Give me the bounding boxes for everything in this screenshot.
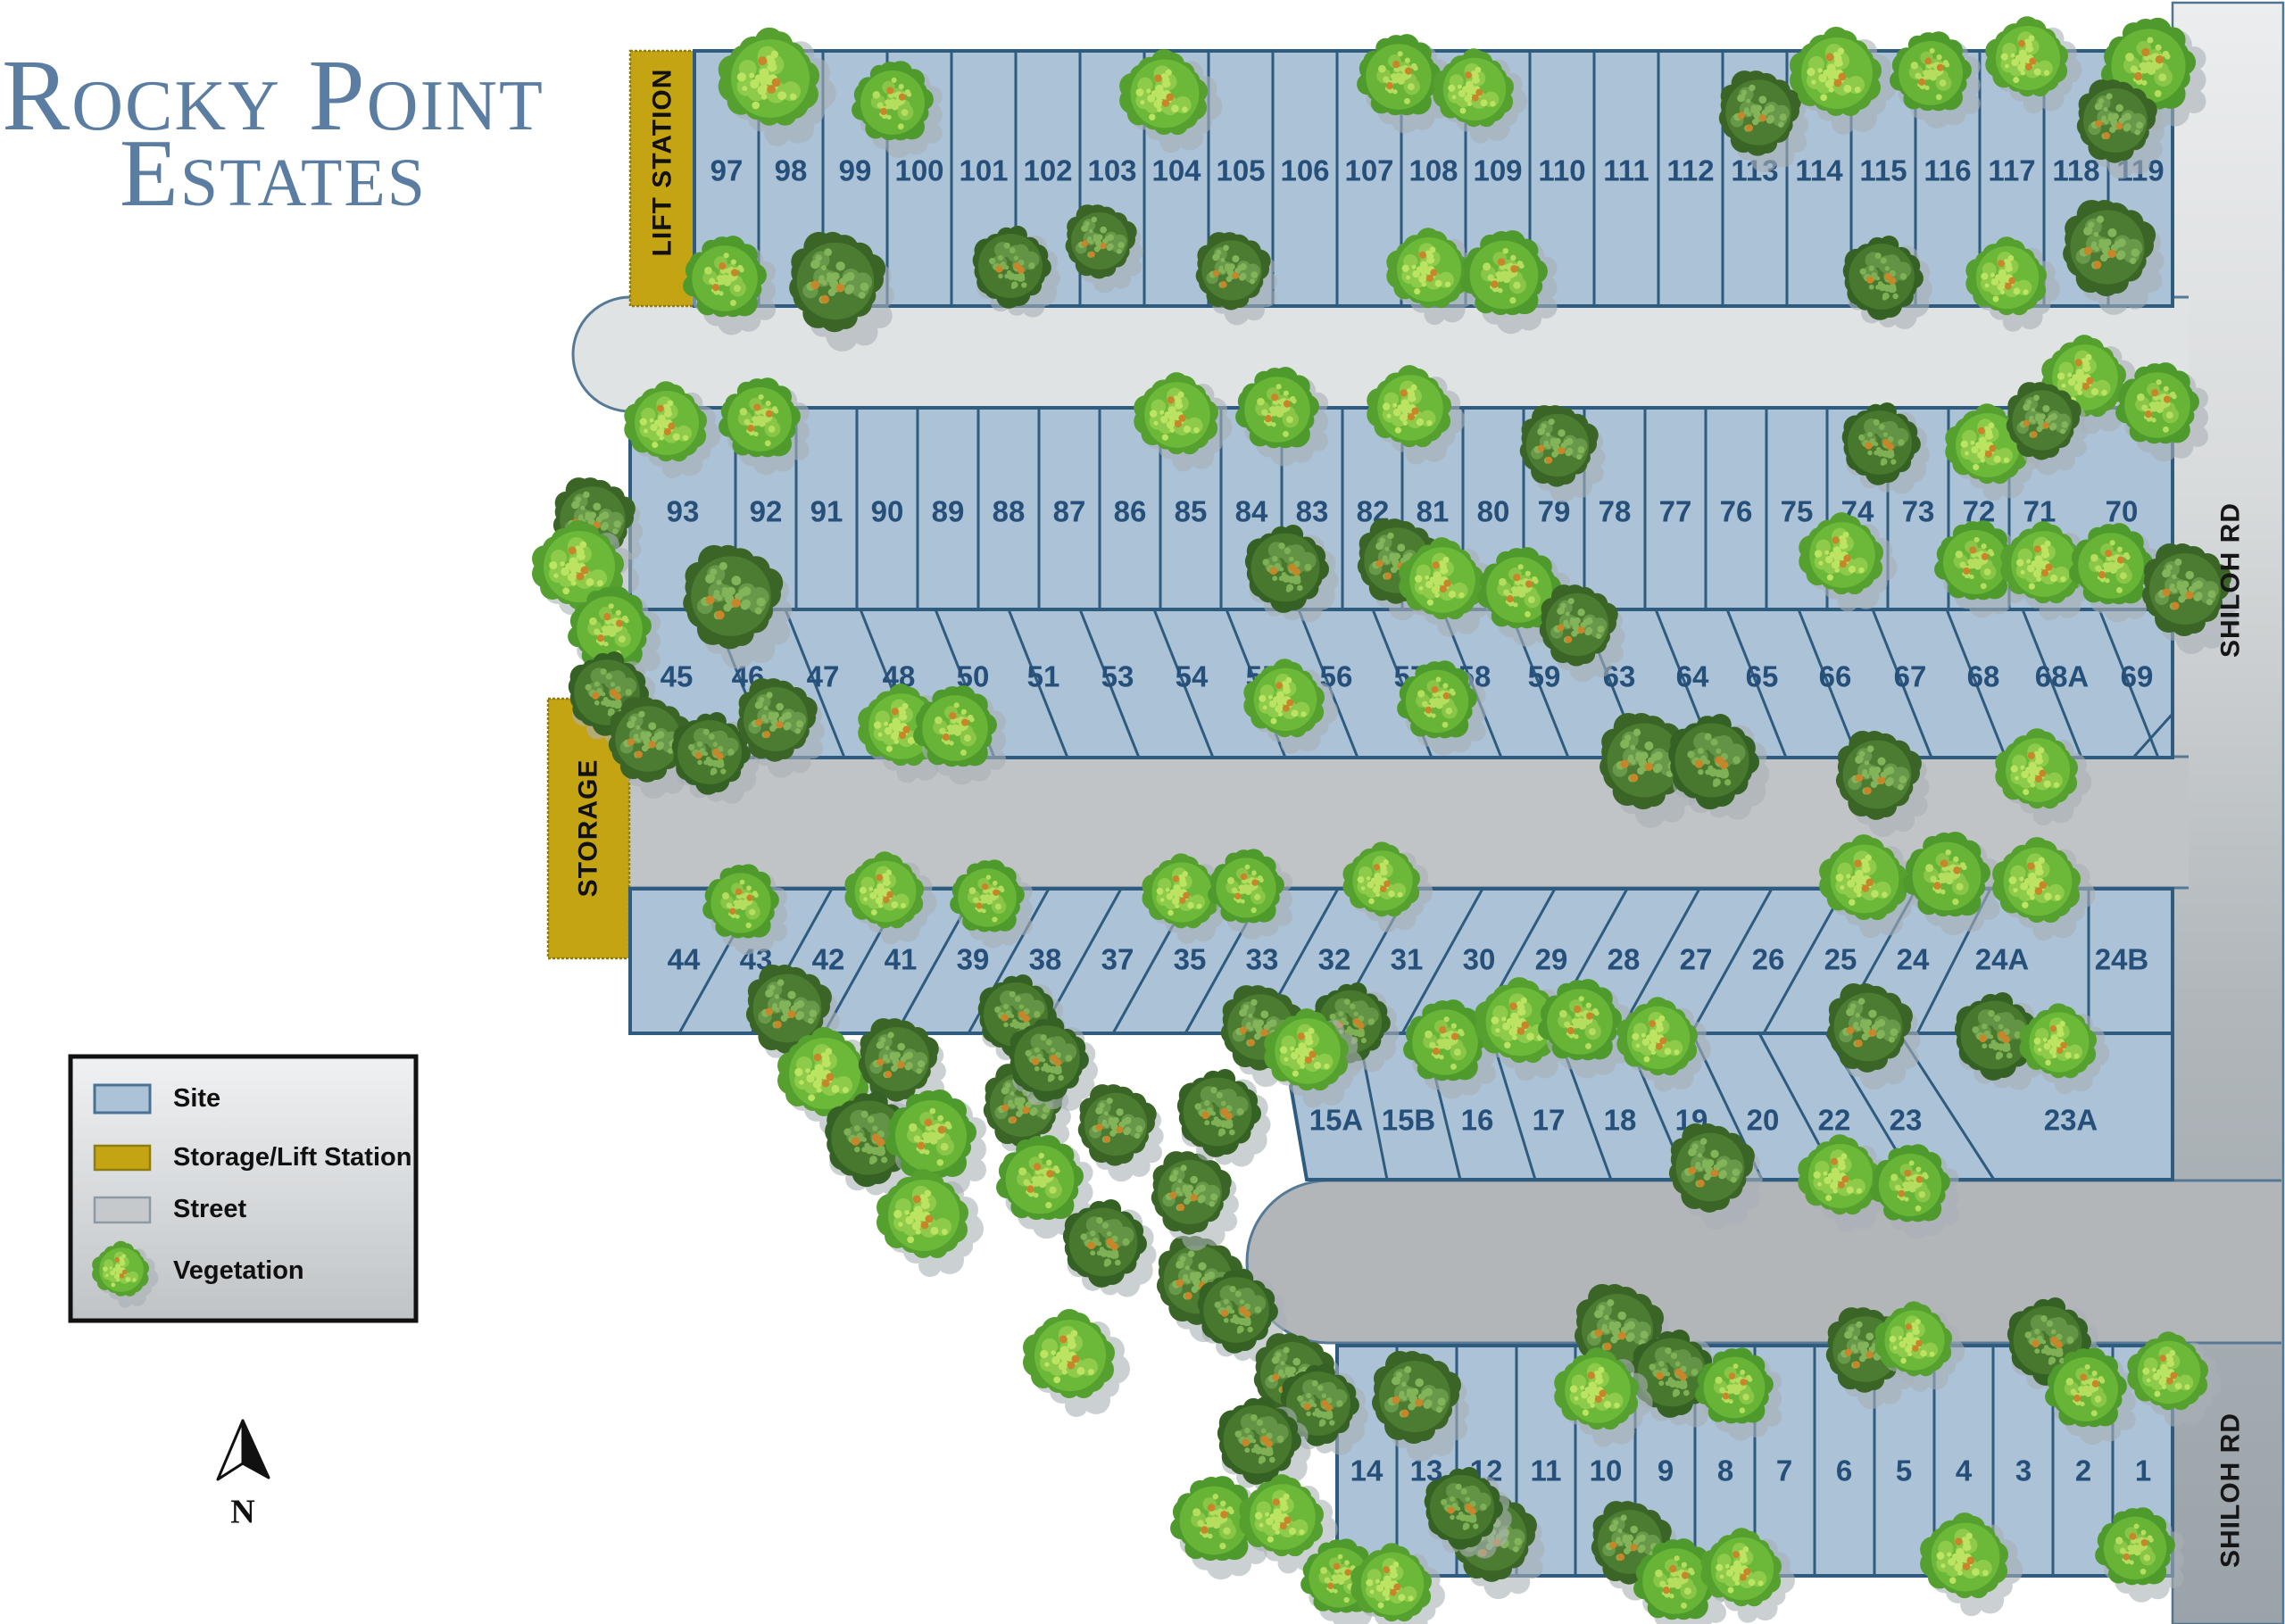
svg-text:83: 83 (1296, 495, 1329, 528)
svg-text:38: 38 (1029, 943, 1062, 976)
svg-text:51: 51 (1027, 660, 1060, 693)
svg-text:4: 4 (1956, 1454, 1973, 1487)
svg-text:84: 84 (1235, 495, 1268, 528)
svg-text:68A: 68A (2035, 660, 2090, 693)
svg-text:99: 99 (839, 154, 872, 187)
svg-text:1: 1 (2135, 1454, 2151, 1487)
svg-text:27: 27 (1680, 943, 1713, 976)
svg-text:6: 6 (1836, 1454, 1852, 1487)
svg-text:2: 2 (2075, 1454, 2091, 1487)
svg-text:23A: 23A (2044, 1104, 2098, 1137)
svg-text:101: 101 (959, 154, 1008, 187)
svg-text:Site: Site (173, 1084, 220, 1113)
svg-text:65: 65 (1746, 660, 1779, 693)
svg-text:LIFT STATION: LIFT STATION (648, 69, 677, 257)
svg-text:66: 66 (1819, 660, 1852, 693)
svg-text:77: 77 (1659, 495, 1692, 528)
svg-text:15A: 15A (1309, 1104, 1364, 1137)
svg-text:81: 81 (1417, 495, 1450, 528)
svg-text:91: 91 (810, 495, 843, 528)
svg-text:105: 105 (1216, 154, 1265, 187)
svg-text:47: 47 (807, 660, 840, 693)
svg-text:103: 103 (1087, 154, 1136, 187)
svg-text:22: 22 (1818, 1104, 1851, 1137)
svg-text:41: 41 (885, 943, 918, 976)
svg-text:Storage/Lift Station: Storage/Lift Station (173, 1143, 411, 1172)
svg-text:68: 68 (1967, 660, 2000, 693)
svg-text:106: 106 (1280, 154, 1329, 187)
svg-text:SHILOH RD: SHILOH RD (2216, 502, 2246, 658)
svg-text:Vegetation: Vegetation (173, 1256, 304, 1285)
svg-text:32: 32 (1318, 943, 1351, 976)
svg-text:118: 118 (2052, 154, 2099, 187)
svg-text:98: 98 (775, 154, 808, 187)
svg-text:28: 28 (1608, 943, 1641, 976)
svg-text:24: 24 (1897, 943, 1930, 976)
svg-text:N: N (230, 1493, 254, 1530)
svg-text:29: 29 (1535, 943, 1568, 976)
svg-text:5: 5 (1896, 1454, 1912, 1487)
svg-text:16: 16 (1461, 1104, 1494, 1137)
svg-text:25: 25 (1824, 943, 1857, 976)
svg-text:102: 102 (1023, 154, 1072, 187)
svg-text:115: 115 (1859, 154, 1907, 187)
svg-text:100: 100 (894, 154, 943, 187)
svg-text:3: 3 (2015, 1454, 2032, 1487)
svg-text:11: 11 (1531, 1454, 1562, 1487)
svg-text:10: 10 (1590, 1454, 1623, 1487)
svg-text:23: 23 (1890, 1104, 1923, 1137)
svg-text:76: 76 (1720, 495, 1753, 528)
svg-text:54: 54 (1176, 660, 1209, 693)
svg-text:90: 90 (871, 495, 904, 528)
svg-text:42: 42 (812, 943, 845, 976)
svg-text:87: 87 (1053, 495, 1086, 528)
svg-text:35: 35 (1174, 943, 1207, 976)
svg-text:67: 67 (1894, 660, 1927, 693)
svg-text:26: 26 (1752, 943, 1785, 976)
svg-text:37: 37 (1101, 943, 1134, 976)
svg-text:STORAGE: STORAGE (574, 759, 603, 898)
svg-text:53: 53 (1101, 660, 1134, 693)
svg-text:24B: 24B (2095, 943, 2149, 976)
svg-text:93: 93 (667, 495, 700, 528)
svg-text:7: 7 (1776, 1454, 1792, 1487)
svg-text:112: 112 (1666, 154, 1714, 187)
svg-text:104: 104 (1151, 154, 1201, 187)
svg-text:110: 110 (1538, 154, 1585, 187)
svg-text:89: 89 (932, 495, 965, 528)
svg-text:108: 108 (1408, 154, 1458, 187)
svg-text:45: 45 (661, 660, 694, 693)
svg-text:59: 59 (1528, 660, 1561, 693)
svg-text:111: 111 (1603, 154, 1649, 187)
svg-text:92: 92 (750, 495, 783, 528)
svg-text:80: 80 (1477, 495, 1510, 528)
svg-text:70: 70 (2106, 495, 2139, 528)
svg-text:116: 116 (1924, 154, 1971, 187)
svg-text:117: 117 (1988, 154, 2035, 187)
svg-text:107: 107 (1344, 154, 1393, 187)
svg-text:75: 75 (1781, 495, 1814, 528)
svg-text:69: 69 (2121, 660, 2154, 693)
svg-text:31: 31 (1391, 943, 1424, 976)
svg-text:SHILOH RD: SHILOH RD (2216, 1413, 2246, 1568)
svg-text:8: 8 (1717, 1454, 1733, 1487)
svg-text:24A: 24A (1975, 943, 2030, 976)
svg-text:78: 78 (1599, 495, 1632, 528)
svg-text:30: 30 (1463, 943, 1496, 976)
svg-text:114: 114 (1795, 154, 1843, 187)
svg-text:17: 17 (1533, 1104, 1566, 1137)
svg-text:88: 88 (993, 495, 1026, 528)
svg-text:97: 97 (710, 154, 744, 187)
svg-text:33: 33 (1246, 943, 1279, 976)
svg-text:18: 18 (1604, 1104, 1637, 1137)
svg-text:109: 109 (1473, 154, 1522, 187)
svg-text:44: 44 (668, 943, 701, 976)
svg-text:15B: 15B (1382, 1104, 1436, 1137)
svg-text:86: 86 (1114, 495, 1147, 528)
svg-text:73: 73 (1902, 495, 1935, 528)
svg-text:85: 85 (1175, 495, 1208, 528)
svg-text:Estates: Estates (120, 120, 427, 227)
svg-text:14: 14 (1350, 1454, 1383, 1487)
svg-text:64: 64 (1676, 660, 1709, 693)
svg-text:9: 9 (1658, 1454, 1674, 1487)
svg-text:39: 39 (957, 943, 990, 976)
svg-text:20: 20 (1747, 1104, 1780, 1137)
svg-text:Street: Street (173, 1195, 247, 1223)
